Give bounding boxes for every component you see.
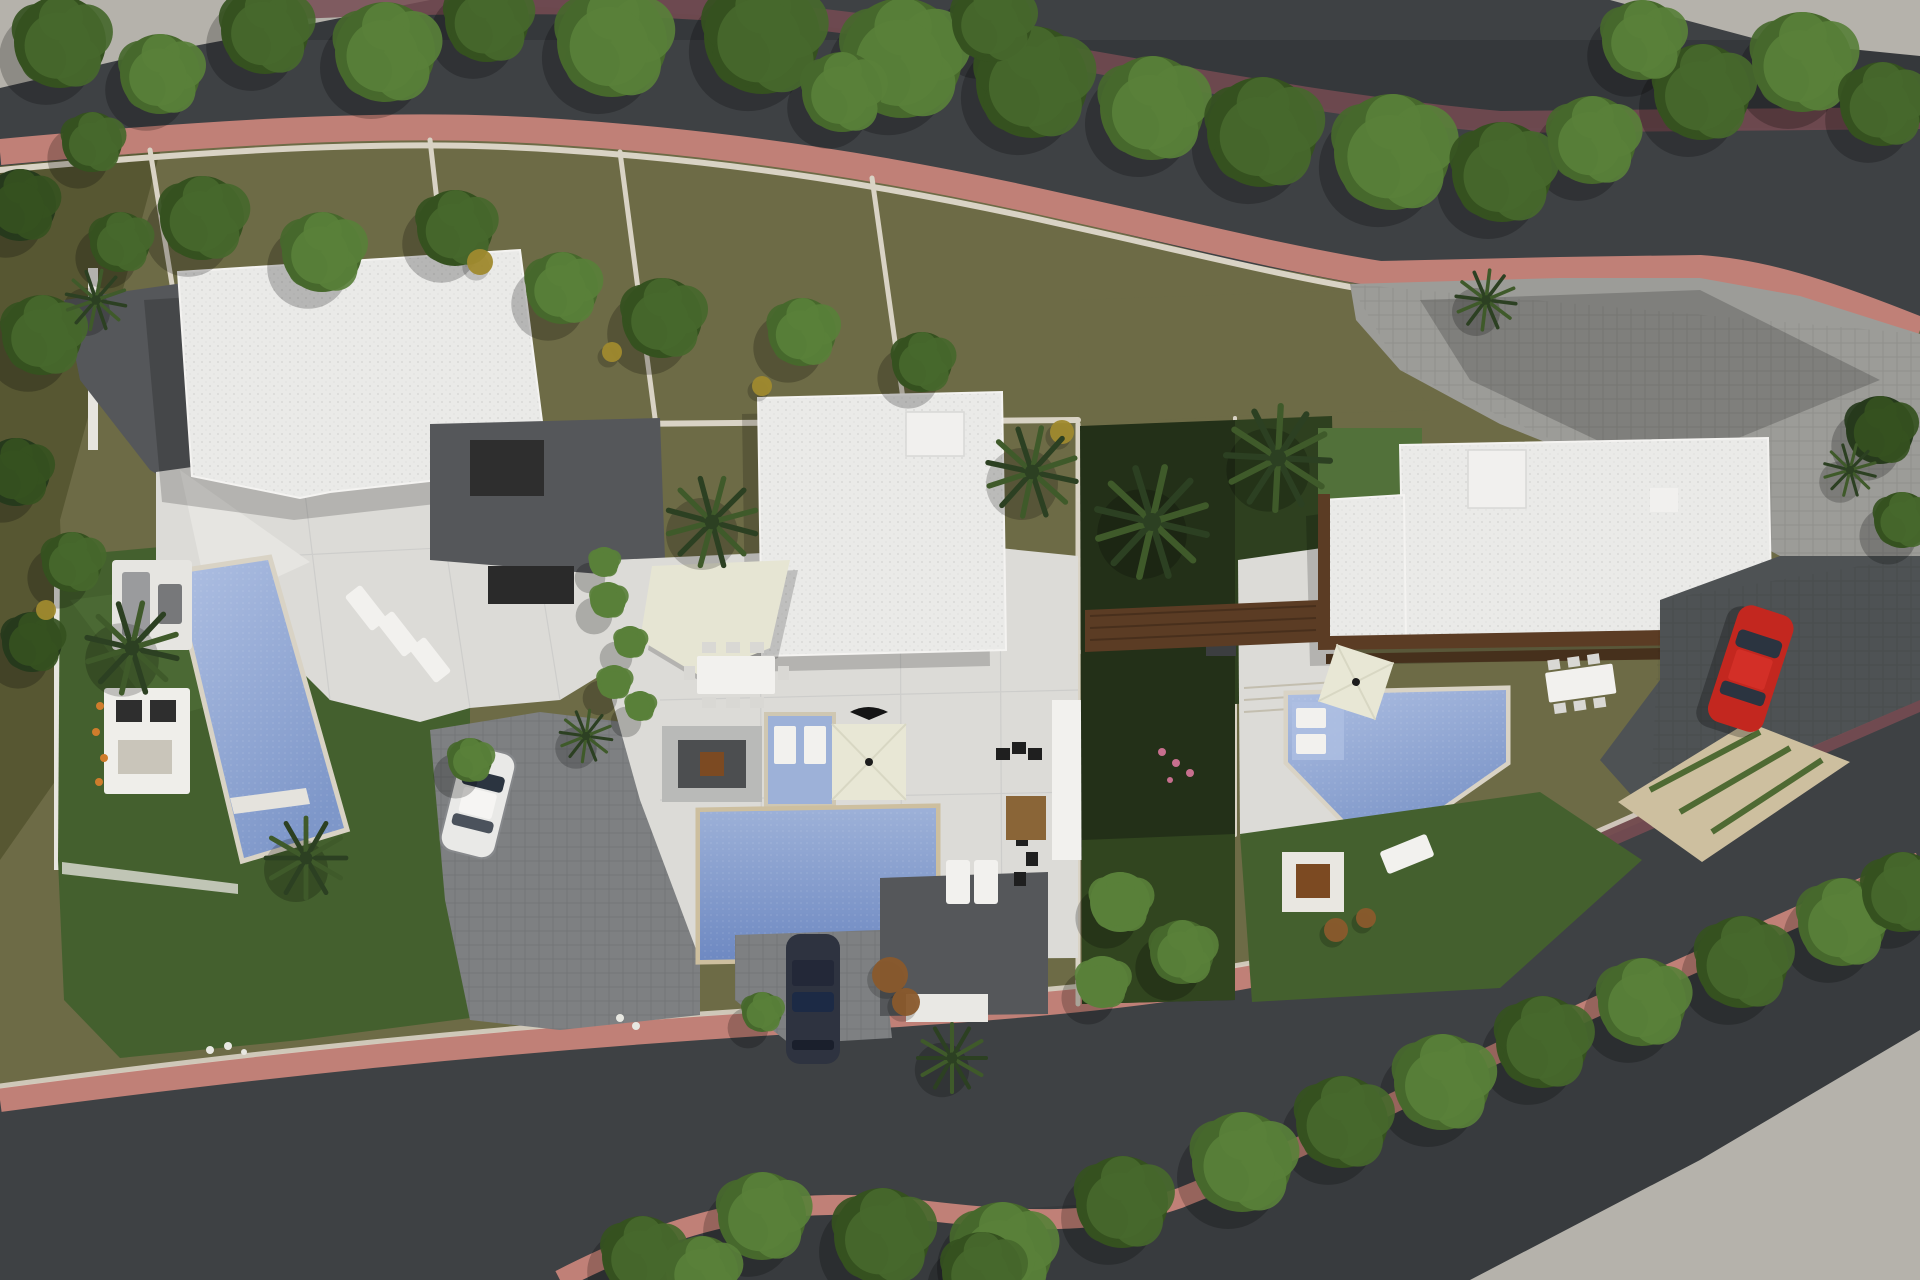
grill xyxy=(150,700,176,722)
palm-crown xyxy=(1481,295,1491,305)
tree-canopy xyxy=(1157,932,1203,978)
tree-canopy xyxy=(1405,1051,1474,1120)
villa3-roof-vent xyxy=(1650,488,1678,512)
tree-canopy xyxy=(618,632,641,655)
tree-canopy xyxy=(1707,933,1773,999)
tree-canopy xyxy=(11,309,69,367)
shrub xyxy=(752,376,772,396)
tree-canopy xyxy=(1204,1130,1276,1202)
flower-cluster xyxy=(95,778,103,786)
tree-canopy xyxy=(1220,97,1299,176)
tree-canopy xyxy=(1464,140,1536,212)
tree-canopy xyxy=(601,671,625,695)
flower-cluster xyxy=(92,728,100,736)
tree-canopy xyxy=(845,1205,914,1274)
spa-sun-pad xyxy=(804,726,826,764)
pool-sun-pad xyxy=(1296,734,1326,754)
tree-canopy xyxy=(25,13,91,79)
shrub xyxy=(892,988,920,1016)
car-roof xyxy=(792,960,834,986)
dark-car xyxy=(786,934,840,1064)
palm-crown xyxy=(91,295,101,305)
flower-cluster xyxy=(224,1042,232,1050)
palm-crown xyxy=(300,852,313,865)
car-windshield xyxy=(792,992,834,1012)
dining-table xyxy=(697,656,775,694)
shrub xyxy=(467,249,493,275)
tree-canopy xyxy=(899,343,942,386)
flower-cluster xyxy=(1158,748,1166,756)
tree-canopy xyxy=(1507,1013,1573,1079)
tree-canopy xyxy=(49,543,92,586)
villa3-fire-pit xyxy=(1282,852,1344,912)
villa2-roof xyxy=(758,392,1006,656)
tree-canopy xyxy=(129,48,187,106)
villa2-spa xyxy=(766,714,834,806)
tree-canopy xyxy=(747,999,776,1028)
shrub xyxy=(1324,918,1348,942)
shrub xyxy=(36,600,56,620)
car-rear xyxy=(792,1040,834,1050)
tree-canopy xyxy=(426,204,481,259)
court-bench xyxy=(488,566,574,604)
palm-crown xyxy=(1846,466,1854,474)
sun-pad xyxy=(946,860,970,904)
tree-canopy xyxy=(347,20,419,92)
tree-canopy xyxy=(811,66,869,124)
tree-canopy xyxy=(534,265,586,317)
tree-canopy xyxy=(728,1188,791,1251)
tree-canopy xyxy=(594,588,620,614)
tree-canopy xyxy=(717,0,801,82)
flower-cluster xyxy=(616,1014,624,1022)
tree-canopy xyxy=(1611,14,1669,72)
villa2-roof-skylight-box xyxy=(906,412,964,456)
villa2-fire-lounge xyxy=(662,726,762,802)
flower-cluster xyxy=(96,702,104,710)
shrub xyxy=(872,957,908,993)
tree-canopy xyxy=(1097,883,1140,926)
palm-crown xyxy=(947,1053,958,1064)
tree-canopy xyxy=(1850,77,1910,137)
tree-canopy xyxy=(631,292,689,350)
tree-canopy xyxy=(453,746,485,778)
villa1-entry-court xyxy=(430,418,665,574)
tree-canopy xyxy=(1608,974,1671,1037)
aerial-site-plan-render xyxy=(0,0,1920,1280)
tree-canopy xyxy=(1808,894,1871,957)
tree-canopy xyxy=(231,2,294,65)
grill xyxy=(116,700,142,722)
tree-canopy xyxy=(776,310,825,359)
tree-canopy xyxy=(1880,502,1920,542)
flower-cluster xyxy=(100,754,108,762)
counter xyxy=(118,740,172,774)
shrub xyxy=(602,342,622,362)
outdoor-rug xyxy=(1006,796,1046,840)
flower-cluster xyxy=(241,1049,247,1055)
villa3-roof-wing xyxy=(1322,495,1406,646)
shrub xyxy=(1356,908,1376,928)
flower-cluster xyxy=(1167,777,1173,783)
palm-crown xyxy=(125,641,140,656)
fire-pit xyxy=(1296,864,1330,898)
tree-canopy xyxy=(170,191,230,251)
tree-canopy xyxy=(1112,75,1187,150)
fire-pit xyxy=(700,752,724,776)
tree-canopy xyxy=(97,223,140,266)
court-kitchen-counter xyxy=(470,440,544,496)
tree-canopy xyxy=(1558,112,1621,175)
palm-crown xyxy=(705,515,719,529)
pool-sun-pad xyxy=(1296,708,1326,728)
flower-cluster xyxy=(632,1022,640,1030)
tree-canopy xyxy=(1854,408,1903,457)
terrace-bench-long xyxy=(1052,700,1082,860)
tree-canopy xyxy=(628,696,650,718)
palm-crown xyxy=(1270,450,1287,467)
flower-cluster xyxy=(1172,759,1180,767)
tree-canopy xyxy=(1764,30,1836,102)
palm-shadow xyxy=(264,838,328,902)
sun-pad xyxy=(974,860,998,904)
tree-canopy xyxy=(1087,1173,1153,1239)
villa1-outdoor-kitchen xyxy=(104,688,190,794)
tree-canopy xyxy=(1307,1093,1373,1159)
tree-canopy xyxy=(9,623,52,666)
tree-canopy xyxy=(69,123,112,166)
tree-canopy xyxy=(1347,115,1431,199)
flower-cluster xyxy=(206,1046,214,1054)
tree-canopy xyxy=(1082,965,1119,1002)
scene-canvas xyxy=(0,0,1920,1280)
palm-crown xyxy=(1025,465,1039,479)
tree-canopy xyxy=(1665,61,1734,130)
spa-sun-pad xyxy=(774,726,796,764)
palm-crown xyxy=(582,732,590,740)
villa3-roof-box xyxy=(1468,450,1526,508)
tree-canopy xyxy=(570,7,649,86)
tree-canopy xyxy=(592,552,614,574)
parasol-pole xyxy=(865,758,873,766)
tree-canopy xyxy=(291,226,349,284)
flower-cluster xyxy=(1186,769,1194,777)
palm-crown xyxy=(1143,513,1161,531)
